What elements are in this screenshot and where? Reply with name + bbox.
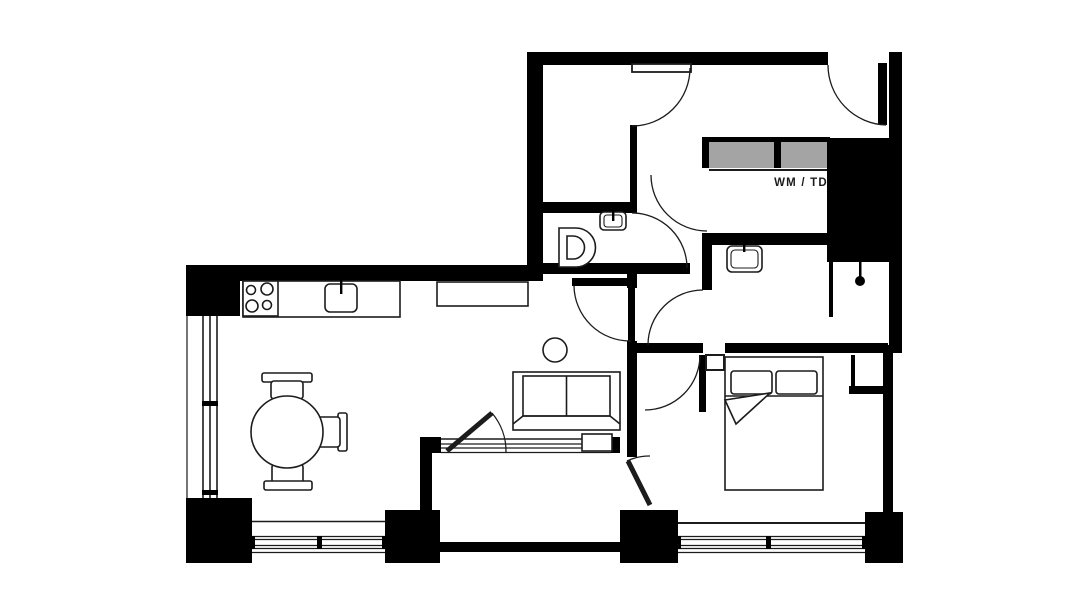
window-mullion [252, 536, 255, 549]
balcony-door-leaf [628, 461, 650, 505]
washing-machine [709, 142, 774, 168]
wall-segment [620, 510, 678, 563]
door-swing-arc [645, 355, 700, 410]
wall-switch-box [706, 355, 724, 370]
balcony-door-leaf [447, 413, 492, 451]
wall-segment [774, 140, 781, 168]
wall-segment [527, 52, 828, 65]
door-swing-arc [828, 65, 886, 125]
dining-table [251, 396, 323, 468]
wall-segment [702, 233, 712, 290]
window-mullion [202, 401, 218, 406]
tap-icon [743, 240, 745, 252]
burner-icon [247, 286, 256, 295]
floor-plan-page: WM / TD [0, 0, 1092, 614]
threshold-panel [582, 434, 612, 451]
wm-td-label: WM / TD [774, 177, 828, 189]
wall-segment [883, 345, 893, 513]
wall-segment [632, 263, 690, 274]
pillow [776, 371, 817, 394]
burner-icon [263, 301, 272, 310]
side-table [543, 338, 567, 362]
shower-head-arm [859, 262, 862, 278]
window-mullion [202, 490, 218, 495]
appliance-bay [709, 142, 827, 168]
burner-icon [261, 283, 273, 295]
service-shaft [827, 138, 890, 262]
wall-segment [889, 52, 902, 353]
bathroom-basin-inner [731, 250, 758, 268]
living-door-leaf [628, 288, 635, 341]
wall-segment [438, 542, 623, 552]
wall-segment [428, 437, 441, 453]
toilet-bowl [567, 236, 585, 259]
wall-segment [627, 341, 637, 457]
door-swing-arc [574, 286, 631, 341]
entrance-door-leaf [878, 63, 887, 125]
window-mullion [862, 536, 865, 549]
sideboard [437, 282, 528, 306]
closet-partition [851, 355, 855, 388]
window-mullion [766, 536, 771, 549]
floor-plan: WM / TD [0, 0, 1092, 614]
burner-icon [246, 300, 258, 312]
pillow [731, 371, 772, 394]
wall-segment [702, 233, 828, 245]
wall-segment [725, 343, 888, 353]
door-swing-arc [651, 175, 707, 231]
door-swing-arc [492, 413, 506, 452]
window-mullion [317, 536, 322, 549]
window-mullion [382, 536, 385, 549]
tap-icon [340, 278, 342, 294]
storage-door-leaf [632, 64, 691, 72]
wall-segment [527, 52, 543, 281]
wall-segment [637, 343, 703, 353]
door-swing-arc [632, 213, 687, 268]
wall-segment [702, 137, 709, 168]
tumble-dryer [781, 142, 827, 168]
wall-segment [572, 278, 637, 286]
shower-head [855, 276, 865, 286]
wall-segment [186, 498, 252, 563]
door-swing-arc [632, 68, 690, 126]
tap-icon [612, 209, 614, 221]
wall-segment [385, 510, 440, 563]
wall-segment [186, 265, 240, 316]
shower-screen [829, 262, 833, 317]
wall-segment [630, 125, 637, 205]
door-swing-arc [648, 290, 703, 345]
window-mullion [678, 536, 681, 549]
dining-chair [264, 481, 312, 490]
wall-segment [865, 512, 903, 563]
